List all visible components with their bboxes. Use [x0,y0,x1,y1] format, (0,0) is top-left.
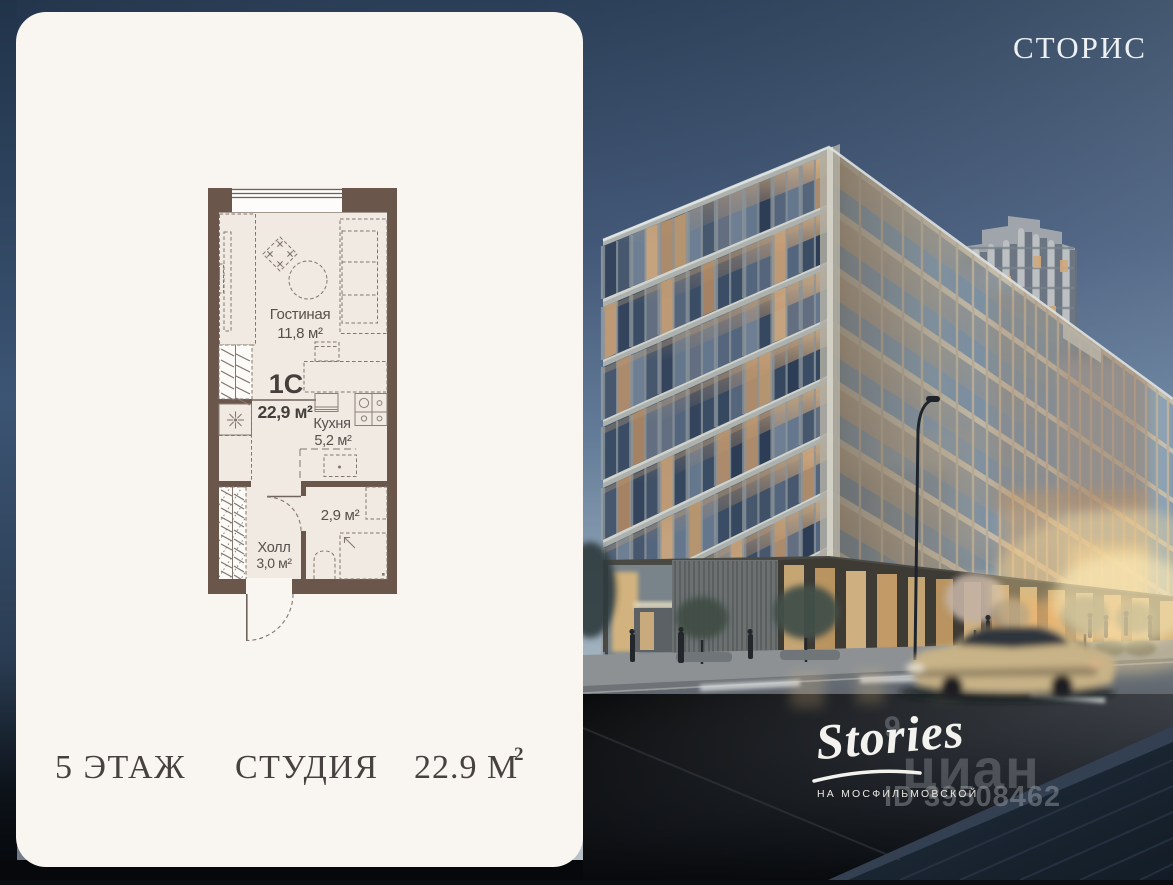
svg-text:1С: 1С [269,369,304,399]
svg-text:5,2 м²: 5,2 м² [314,433,352,449]
svg-text:3,0 м²: 3,0 м² [256,555,292,571]
svg-text:5 ЭТАЖ: 5 ЭТАЖ [55,749,186,786]
svg-text:Холл: Холл [258,540,291,556]
svg-text:СТОРИС: СТОРИС [1013,30,1147,65]
svg-text:НА МОСФИЛЬМОВСКОЙ: НА МОСФИЛЬМОВСКОЙ [817,787,978,800]
svg-text:2,9 м²: 2,9 м² [321,507,360,524]
svg-text:22.9 М: 22.9 М [414,749,518,786]
svg-text:11,8 м²: 11,8 м² [277,325,323,342]
svg-text:2: 2 [514,744,524,765]
svg-text:Гостиная: Гостиная [270,306,331,323]
svg-text:Кухня: Кухня [313,416,350,432]
svg-text:22,9 м²: 22,9 м² [258,402,313,422]
svg-text:СТУДИЯ: СТУДИЯ [235,749,379,786]
